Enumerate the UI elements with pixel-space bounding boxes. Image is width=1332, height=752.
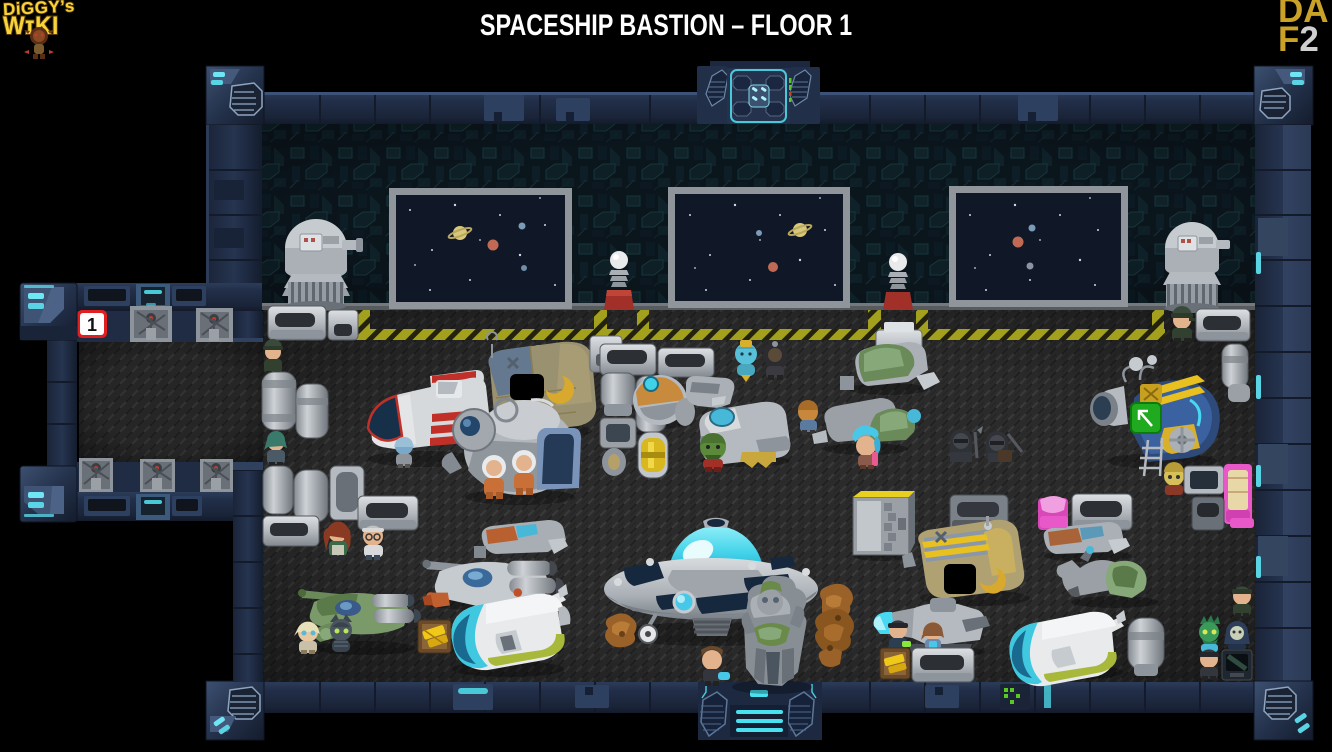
svg-text:1: 1	[87, 315, 97, 335]
